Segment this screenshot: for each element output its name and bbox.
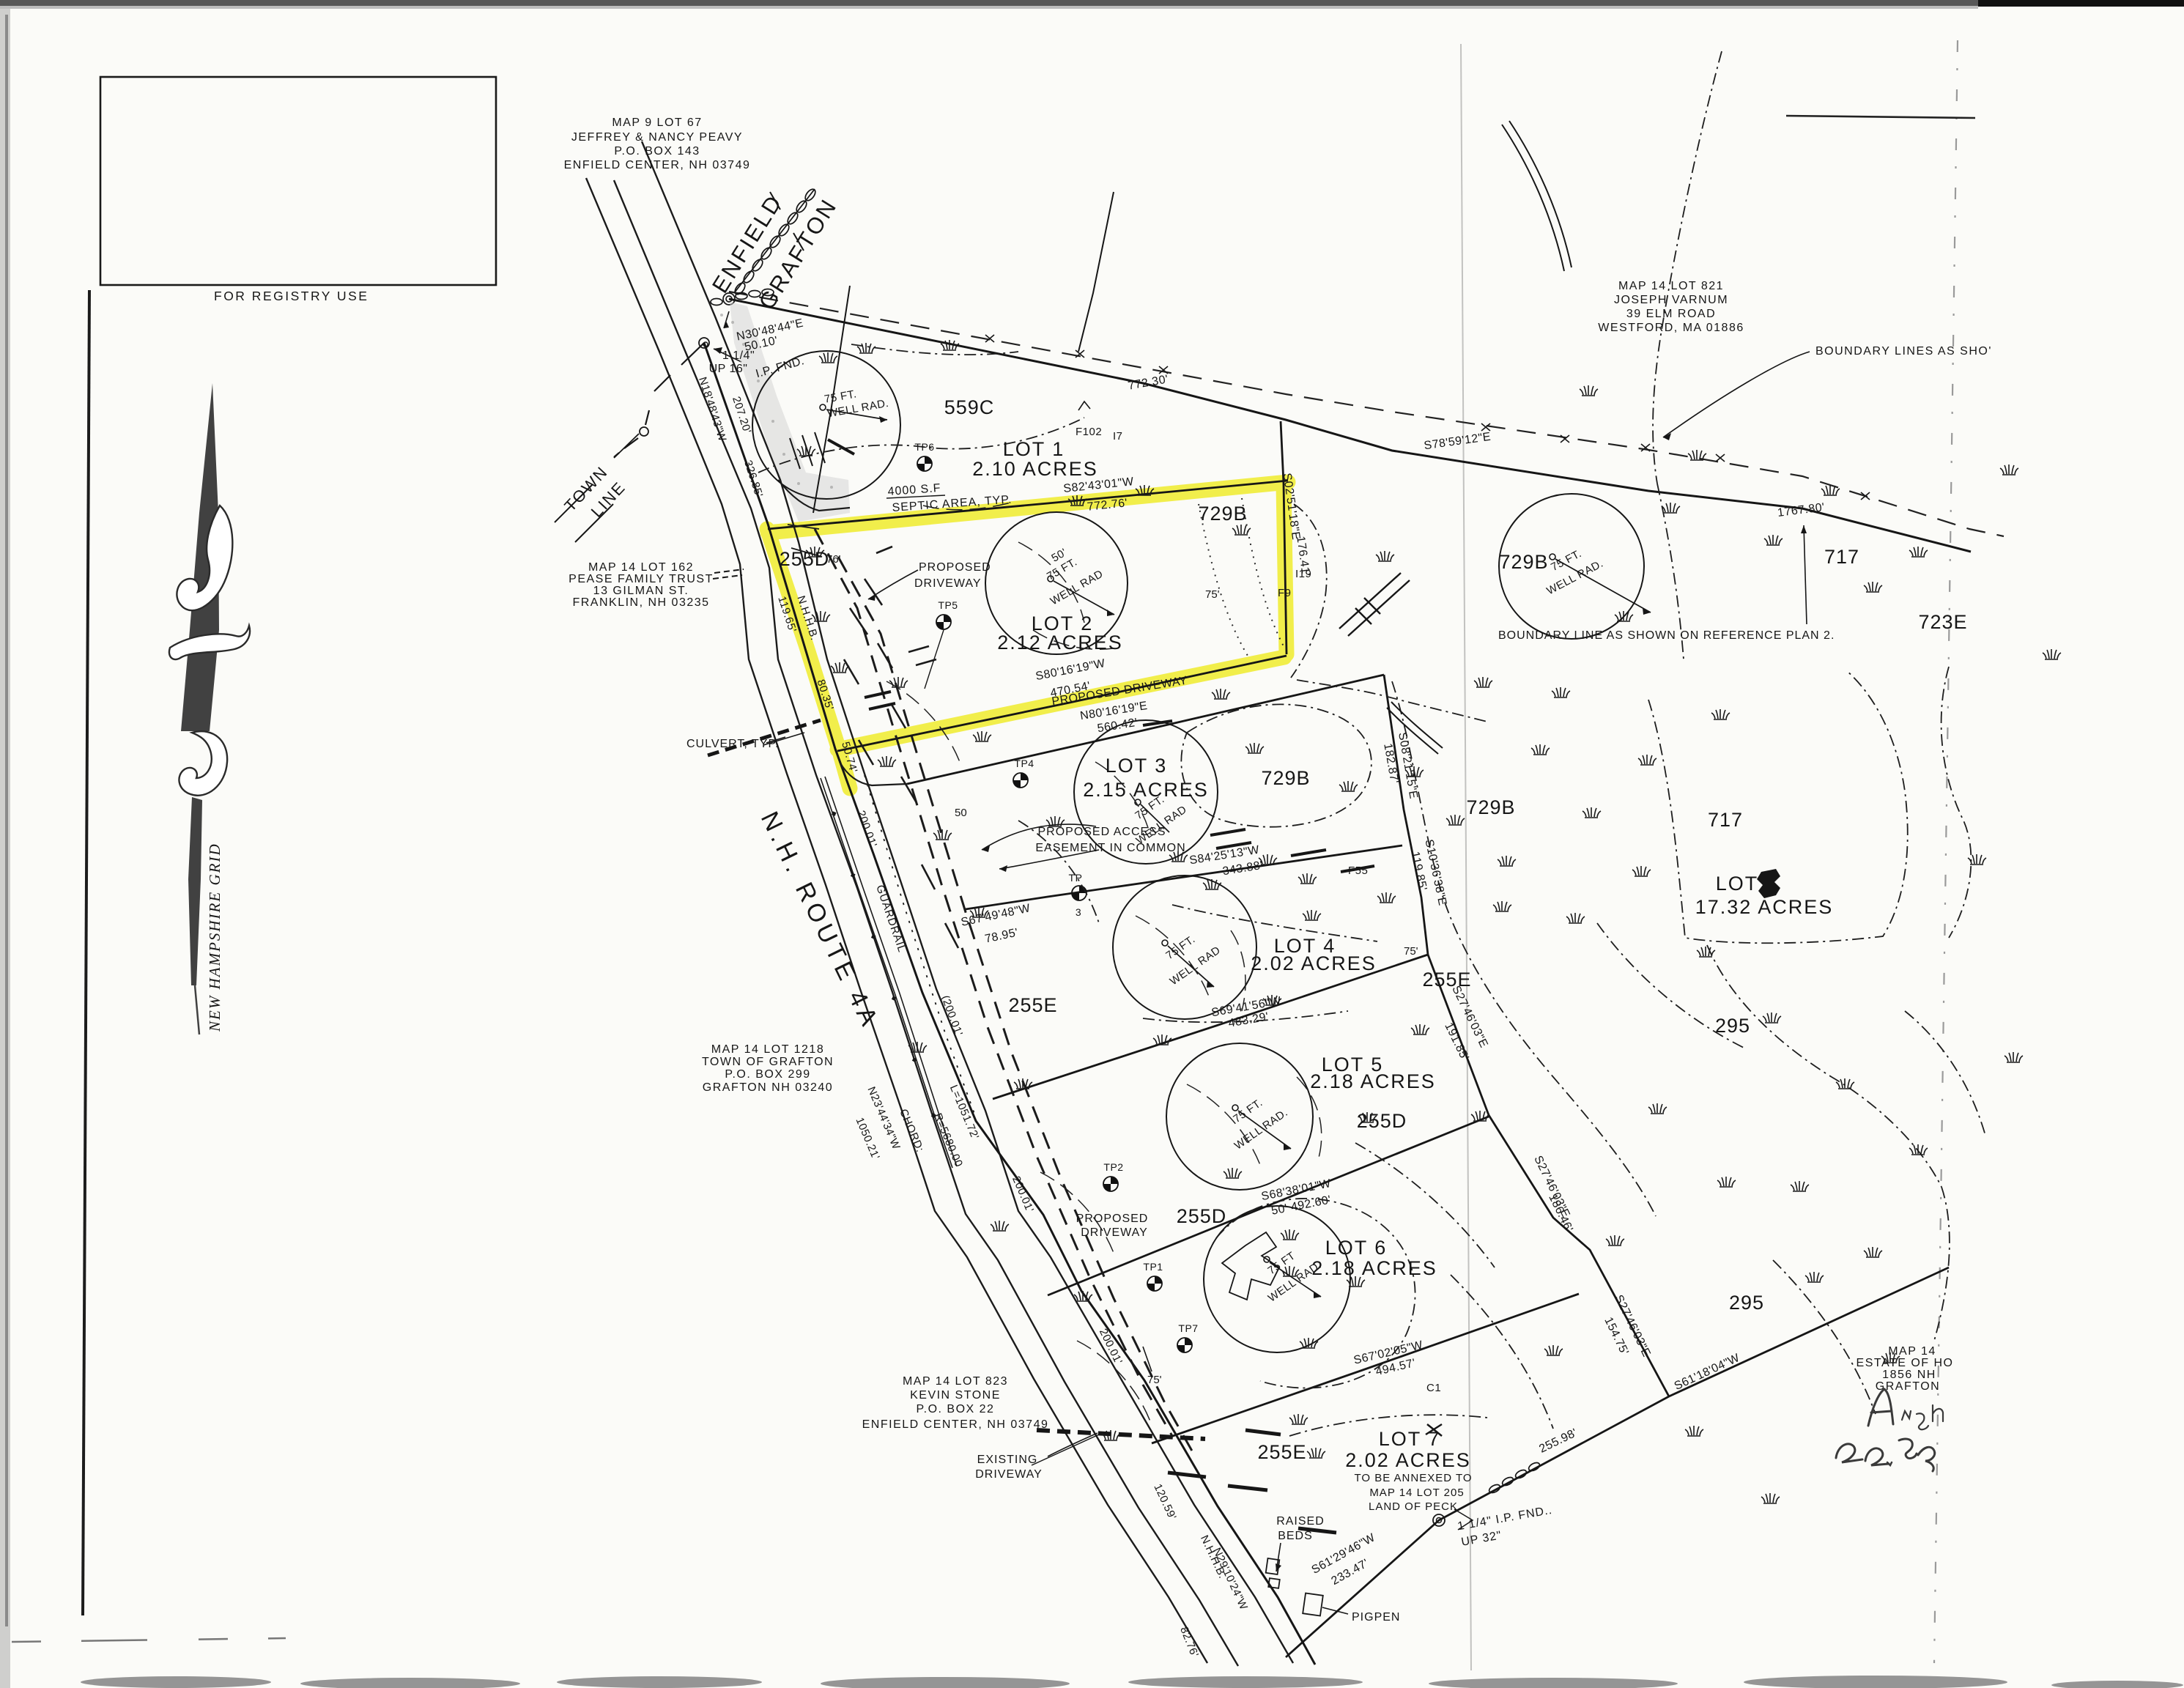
svg-text:TOWN OF GRAFTON: TOWN OF GRAFTON bbox=[702, 1056, 834, 1068]
svg-text:S10'36'38"E: S10'36'38"E bbox=[1423, 838, 1449, 907]
svg-text:DRIVEWAY: DRIVEWAY bbox=[1081, 1226, 1148, 1239]
svg-text:TP6: TP6 bbox=[914, 441, 934, 453]
svg-text:78.95': 78.95' bbox=[984, 926, 1020, 945]
svg-text:KEVIN STONE: KEVIN STONE bbox=[910, 1389, 1001, 1402]
svg-text:TP7: TP7 bbox=[1178, 1322, 1198, 1334]
svg-text:LAND OF PECK: LAND OF PECK bbox=[1369, 1500, 1458, 1513]
svg-text:MAP 14 LOT 162: MAP 14 LOT 162 bbox=[588, 561, 694, 574]
svg-text:TP2: TP2 bbox=[1103, 1161, 1123, 1173]
svg-text:GUARDRAIL: GUARDRAIL bbox=[873, 884, 908, 955]
svg-text:JEFFREY & NANCY PEAVY: JEFFREY & NANCY PEAVY bbox=[571, 131, 743, 144]
svg-text:1050.21': 1050.21' bbox=[853, 1116, 882, 1162]
svg-text:182.87': 182.87' bbox=[1381, 742, 1400, 785]
svg-text:717: 717 bbox=[1708, 809, 1743, 831]
svg-text:LOT 6: LOT 6 bbox=[1325, 1237, 1388, 1259]
svg-text:BOUNDARY LINE AS SHOWN ON REFE: BOUNDARY LINE AS SHOWN ON REFERENCE PLAN… bbox=[1498, 629, 1835, 642]
svg-text:C1: C1 bbox=[1426, 1382, 1441, 1394]
svg-text:MAP 9 LOT 67: MAP 9 LOT 67 bbox=[612, 116, 702, 129]
svg-text:39 ELM ROAD: 39 ELM ROAD bbox=[1626, 308, 1716, 320]
svg-text:ENFIELD CENTER, NH 03749: ENFIELD CENTER, NH 03749 bbox=[564, 159, 751, 171]
svg-text:PROPOSED: PROPOSED bbox=[1076, 1213, 1149, 1225]
svg-text:PIGPEN: PIGPEN bbox=[1352, 1611, 1400, 1624]
svg-text:(200.01': (200.01' bbox=[939, 993, 965, 1037]
svg-text:S80'16'19"W: S80'16'19"W bbox=[1034, 657, 1106, 683]
svg-text:729B: 729B bbox=[1198, 503, 1247, 525]
svg-text:TP4: TP4 bbox=[1014, 758, 1034, 769]
svg-text:2.02 ACRES: 2.02 ACRES bbox=[1345, 1449, 1471, 1471]
svg-text:TO BE ANNEXED TO: TO BE ANNEXED TO bbox=[1354, 1472, 1472, 1484]
svg-text:GRAFTON NH 03240: GRAFTON NH 03240 bbox=[703, 1081, 833, 1094]
svg-text:17.32 ACRES: 17.32 ACRES bbox=[1695, 896, 1834, 918]
svg-text:295: 295 bbox=[1729, 1292, 1764, 1314]
svg-text:TP1: TP1 bbox=[1143, 1261, 1163, 1273]
svg-text:723E: 723E bbox=[1918, 611, 1967, 633]
svg-text:S78'59'12"E: S78'59'12"E bbox=[1424, 431, 1492, 453]
svg-text:FOR REGISTRY USE: FOR REGISTRY USE bbox=[214, 289, 369, 303]
svg-text:82.76': 82.76' bbox=[1177, 1625, 1201, 1659]
svg-text:N29'10'24"W: N29'10'24"W bbox=[1210, 1546, 1250, 1613]
svg-text:DRIVEWAY: DRIVEWAY bbox=[975, 1468, 1043, 1481]
svg-text:200.01': 200.01' bbox=[854, 809, 879, 849]
svg-text:255.98': 255.98' bbox=[1537, 1426, 1579, 1456]
svg-text:P.O. BOX 143: P.O. BOX 143 bbox=[614, 145, 700, 158]
svg-text:343.88': 343.88' bbox=[1222, 859, 1264, 878]
svg-text:559C: 559C bbox=[944, 396, 995, 418]
svg-text:UP 32": UP 32" bbox=[1460, 1529, 1503, 1548]
svg-text:BEDS: BEDS bbox=[1278, 1530, 1313, 1542]
svg-text:75 FT.: 75 FT. bbox=[1231, 1097, 1265, 1126]
svg-text:BOUNDARY LINES AS SHO': BOUNDARY LINES AS SHO' bbox=[1815, 345, 1992, 358]
svg-text:2.18 ACRES: 2.18 ACRES bbox=[1311, 1257, 1437, 1279]
svg-text:WESTFORD, MA 01886: WESTFORD, MA 01886 bbox=[1598, 322, 1744, 334]
svg-text:120.59': 120.59' bbox=[1151, 1482, 1178, 1522]
svg-text:75': 75' bbox=[1205, 588, 1220, 601]
svg-text:3: 3 bbox=[1076, 906, 1081, 918]
svg-text:2.12 ACRES: 2.12 ACRES bbox=[997, 632, 1123, 654]
svg-text:RAISED: RAISED bbox=[1276, 1515, 1325, 1528]
svg-text:76': 76' bbox=[826, 553, 841, 566]
svg-text:EASEMENT IN COMMON: EASEMENT IN COMMON bbox=[1035, 842, 1185, 854]
svg-text:255E: 255E bbox=[1257, 1441, 1306, 1463]
svg-text:N18'48'43"W: N18'48'43"W bbox=[696, 375, 729, 443]
svg-text:MAP 14: MAP 14 bbox=[1888, 1345, 1936, 1358]
svg-text:1 1/4": 1 1/4" bbox=[722, 349, 755, 362]
svg-text:LOT 1: LOT 1 bbox=[1003, 438, 1065, 460]
svg-text:255D: 255D bbox=[1357, 1110, 1407, 1132]
svg-text:JOSEPH VARNUM: JOSEPH VARNUM bbox=[1614, 294, 1728, 306]
svg-text:1767.80': 1767.80' bbox=[1777, 501, 1825, 519]
svg-text:717: 717 bbox=[1824, 546, 1859, 568]
svg-text:F102: F102 bbox=[1076, 426, 1102, 438]
svg-text:LOT 3: LOT 3 bbox=[1106, 755, 1168, 777]
svg-text:255D: 255D bbox=[1177, 1205, 1227, 1227]
svg-text:729B: 729B bbox=[1261, 767, 1310, 789]
svg-text:P.O. BOX 299: P.O. BOX 299 bbox=[725, 1068, 810, 1081]
svg-text:729B: 729B bbox=[1499, 551, 1548, 573]
svg-text:UP 16": UP 16" bbox=[709, 363, 748, 375]
svg-text:S61'18'04"W: S61'18'04"W bbox=[1673, 1352, 1742, 1393]
svg-text:255E: 255E bbox=[1008, 994, 1057, 1016]
svg-text:P.O. BOX 22: P.O. BOX 22 bbox=[917, 1403, 995, 1415]
svg-text:2.02 ACRES: 2.02 ACRES bbox=[1251, 952, 1377, 974]
svg-text:DRIVEWAY: DRIVEWAY bbox=[914, 577, 982, 590]
svg-text:75': 75' bbox=[1147, 1374, 1162, 1386]
svg-text:ENFIELD CENTER, NH 03749: ENFIELD CENTER, NH 03749 bbox=[862, 1418, 1049, 1431]
svg-text:772.30': 772.30' bbox=[1127, 373, 1169, 392]
svg-text:75': 75' bbox=[1404, 945, 1418, 958]
svg-text:MAP 14 LOT 823: MAP 14 LOT 823 bbox=[903, 1375, 1008, 1388]
svg-text:13 GILMAN ST.: 13 GILMAN ST. bbox=[593, 585, 689, 597]
svg-text:F55: F55 bbox=[1348, 865, 1368, 877]
svg-text:ESTATE OF HO: ESTATE OF HO bbox=[1857, 1357, 1954, 1369]
svg-text:MAP 14 LOT 205: MAP 14 LOT 205 bbox=[1369, 1487, 1464, 1499]
svg-text:2.18 ACRES: 2.18 ACRES bbox=[1310, 1070, 1436, 1092]
svg-text:EXISTING: EXISTING bbox=[977, 1454, 1038, 1466]
svg-text:1856 NH: 1856 NH bbox=[1882, 1369, 1936, 1381]
svg-text:MAP 14 LOT 1218: MAP 14 LOT 1218 bbox=[711, 1043, 824, 1056]
svg-text:2.10 ACRES: 2.10 ACRES bbox=[972, 458, 1098, 480]
svg-text:255E: 255E bbox=[1422, 969, 1471, 991]
svg-text:2.15 ACRES: 2.15 ACRES bbox=[1083, 779, 1209, 801]
svg-text:TP: TP bbox=[1069, 872, 1083, 884]
svg-text:295: 295 bbox=[1715, 1015, 1750, 1037]
svg-text:729B: 729B bbox=[1466, 796, 1515, 818]
svg-text:F9: F9 bbox=[1278, 587, 1292, 599]
svg-text:CULVERT, TYP.: CULVERT, TYP. bbox=[686, 738, 780, 750]
svg-text:PEASE FAMILY TRUST: PEASE FAMILY TRUST bbox=[569, 573, 714, 585]
svg-text:S67'49'48"W: S67'49'48"W bbox=[960, 902, 1032, 929]
svg-text:50: 50 bbox=[955, 807, 967, 819]
svg-text:TP5: TP5 bbox=[938, 599, 958, 611]
svg-text:FRANKLIN, NH 03235: FRANKLIN, NH 03235 bbox=[572, 596, 709, 609]
svg-text:MAP 14 LOT 821: MAP 14 LOT 821 bbox=[1618, 280, 1724, 292]
svg-text:I7: I7 bbox=[1113, 430, 1123, 443]
svg-text:PROPOSED: PROPOSED bbox=[919, 561, 991, 574]
svg-text:1 1/4" I.P. FND..: 1 1/4" I.P. FND.. bbox=[1456, 1504, 1553, 1533]
svg-text:NEW HAMPSHIRE GRID: NEW HAMPSHIRE GRID bbox=[206, 843, 223, 1032]
svg-text:255D: 255D bbox=[780, 548, 830, 570]
svg-text:S08'21'15"E: S08'21'15"E bbox=[1396, 731, 1420, 800]
